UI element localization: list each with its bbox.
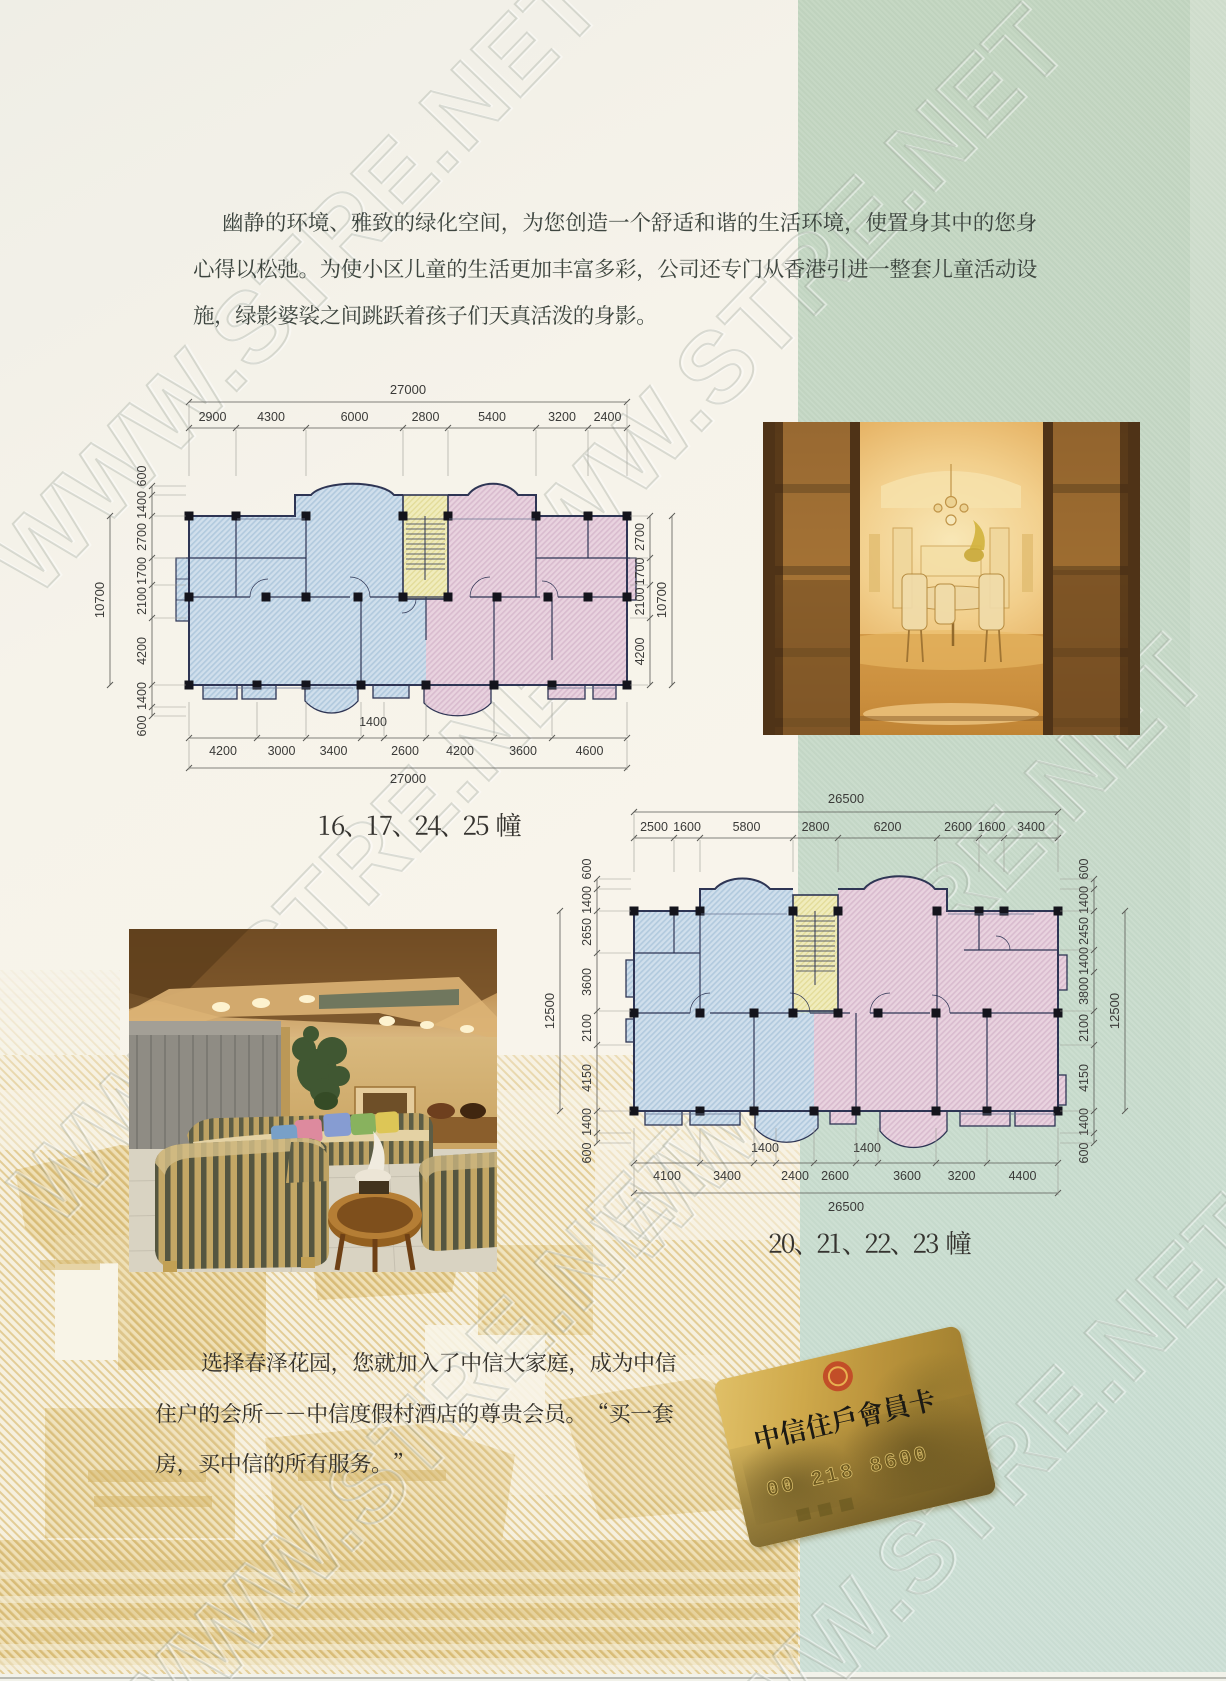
svg-text:00 218 8600: 00 218 8600 bbox=[764, 1443, 931, 1503]
